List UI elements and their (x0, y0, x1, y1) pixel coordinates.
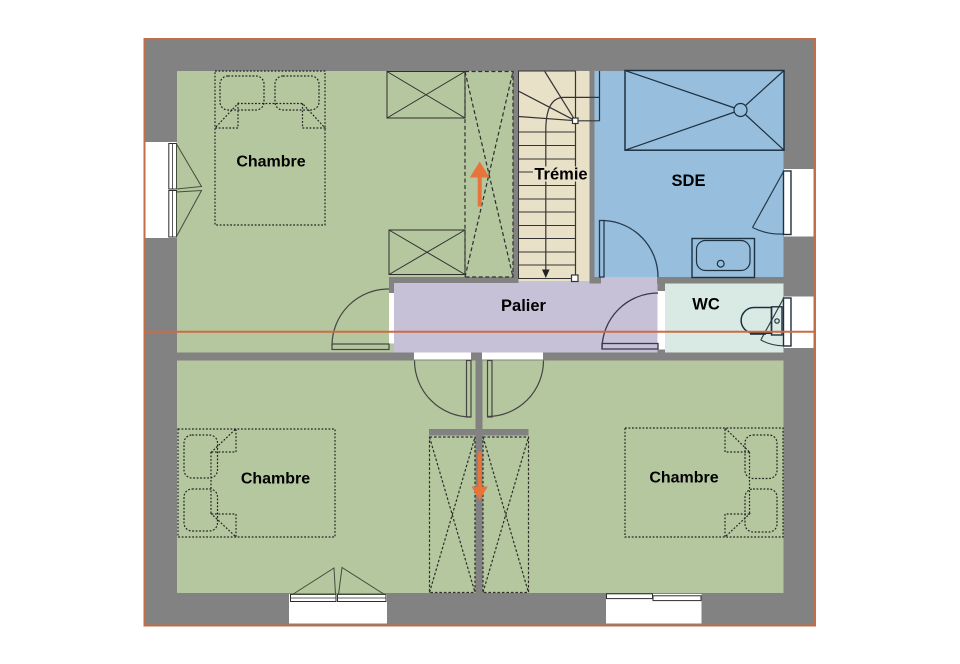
svg-text:Palier: Palier (501, 297, 547, 315)
svg-text:Chambre: Chambre (649, 470, 718, 487)
svg-text:SDE: SDE (672, 172, 706, 190)
svg-text:Chambre: Chambre (236, 153, 305, 170)
svg-text:Trémie: Trémie (534, 166, 587, 184)
svg-text:Chambre: Chambre (241, 471, 310, 488)
svg-text:WC: WC (692, 296, 720, 314)
